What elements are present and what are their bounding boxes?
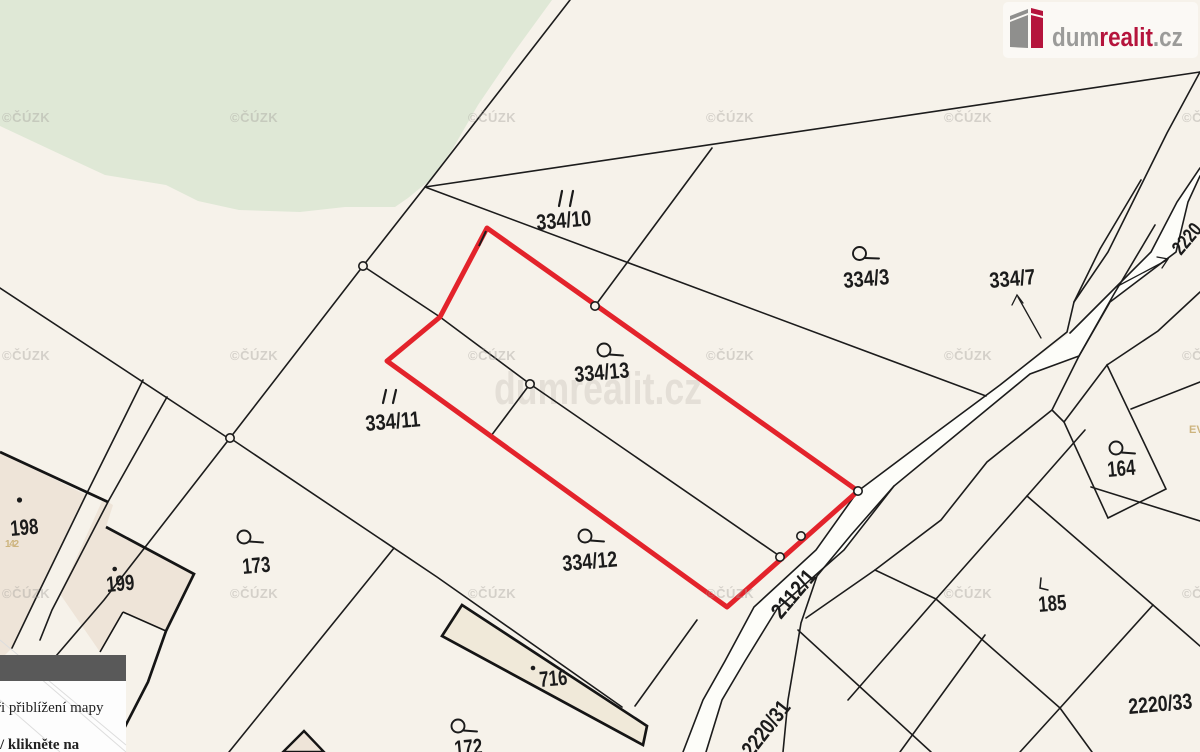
svg-text:334/13: 334/13 [573,357,630,387]
svg-text:198: 198 [9,514,39,541]
svg-text:©ČÚZK: ©ČÚZK [1182,586,1200,601]
svg-text:334/3: 334/3 [842,264,890,293]
svg-text:EV: EV [1189,424,1200,436]
svg-text:©ČÚZK: ©ČÚZK [468,110,516,125]
svg-text:©ČÚZK: ©ČÚZK [468,586,516,601]
svg-text:©ČÚZK: ©ČÚZK [230,110,278,125]
svg-text:©ČÚZK: ©ČÚZK [944,348,992,363]
svg-text:ři přiblížení mapy: ři přiblížení mapy [0,700,104,716]
svg-text:334/12: 334/12 [561,546,618,576]
svg-text:173: 173 [241,552,271,579]
svg-text:334/7: 334/7 [988,264,1036,293]
svg-text:©ČÚZK: ©ČÚZK [230,348,278,363]
svg-text:©ČÚZK: ©ČÚZK [706,110,754,125]
svg-text:©ČÚZK: ©ČÚZK [944,586,992,601]
svg-text:©ČÚZK: ©ČÚZK [2,586,50,601]
svg-text:dumrealit.cz: dumrealit.cz [1052,24,1183,53]
svg-text:/ klikněte na: / klikněte na [0,737,80,752]
svg-text:©ČÚZK: ©ČÚZK [944,110,992,125]
svg-text:142: 142 [5,539,19,550]
svg-text:©ČÚZK: ©ČÚZK [2,348,50,363]
svg-text:716: 716 [538,665,568,692]
svg-text:185: 185 [1037,590,1067,617]
svg-text:199: 199 [105,570,135,597]
svg-text:©ČÚZK: ©ČÚZK [230,586,278,601]
svg-text:334/11: 334/11 [364,406,421,436]
svg-text:©ČÚZK: ©ČÚZK [468,348,516,363]
svg-text:©ČÚZK: ©ČÚZK [706,586,754,601]
svg-text:164: 164 [1106,455,1137,482]
svg-text:©ČÚZK: ©ČÚZK [706,348,754,363]
svg-text:©ČÚZK: ©ČÚZK [1182,348,1200,363]
svg-text:©ČÚZK: ©ČÚZK [1182,110,1200,125]
svg-text:334/10: 334/10 [535,205,592,235]
svg-text:172: 172 [453,734,483,752]
svg-text:©ČÚZK: ©ČÚZK [2,110,50,125]
